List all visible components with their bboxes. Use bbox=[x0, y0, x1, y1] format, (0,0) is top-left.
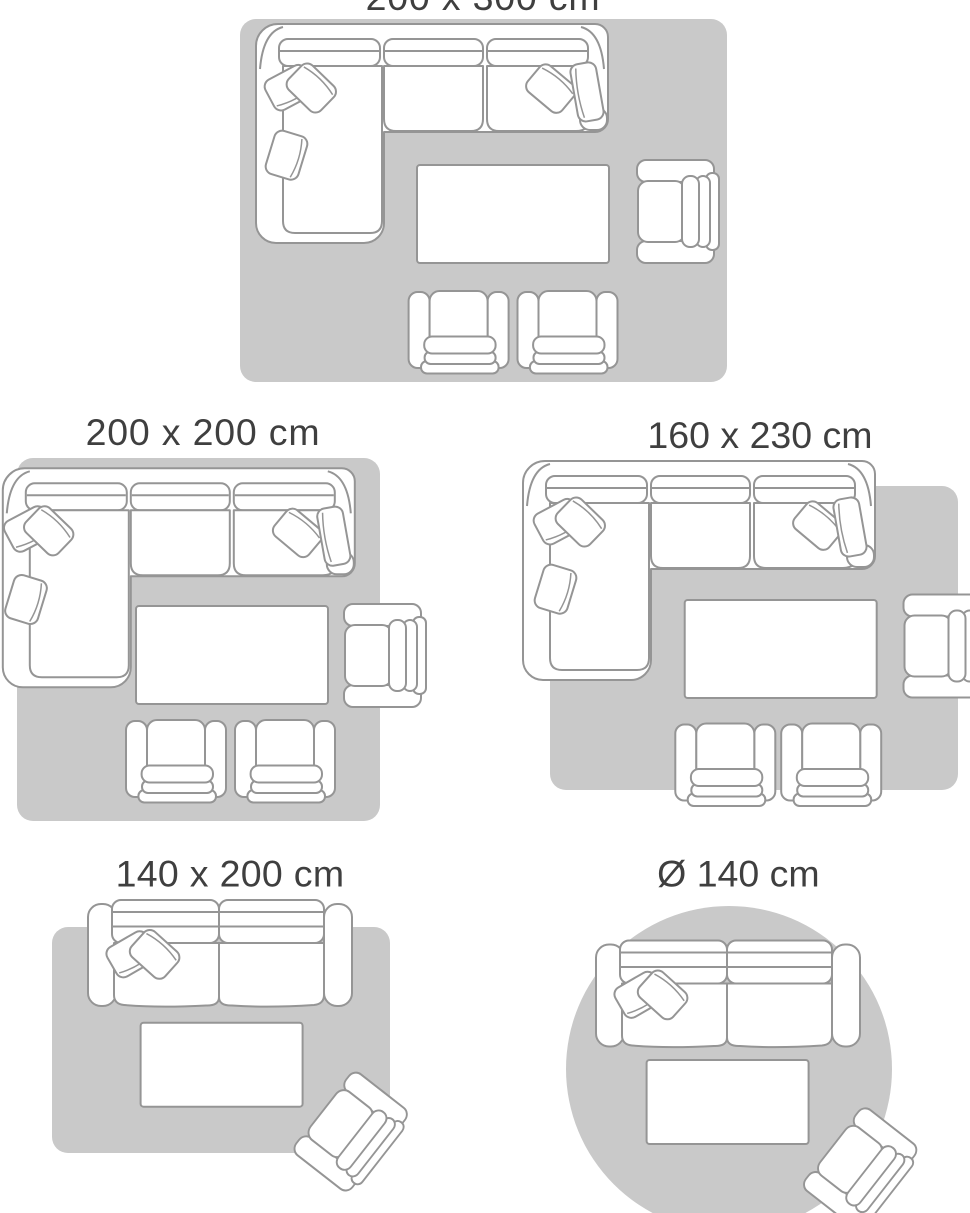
svg-text:200 x 200 cm: 200 x 200 cm bbox=[86, 411, 321, 453]
svg-text:160 x 230 cm: 160 x 230 cm bbox=[647, 414, 872, 456]
svg-text:200 x 300 cm: 200 x 300 cm bbox=[366, 0, 601, 18]
svg-text:140 x 200 cm: 140 x 200 cm bbox=[116, 853, 345, 895]
svg-text:Ø 140 cm: Ø 140 cm bbox=[657, 853, 820, 895]
